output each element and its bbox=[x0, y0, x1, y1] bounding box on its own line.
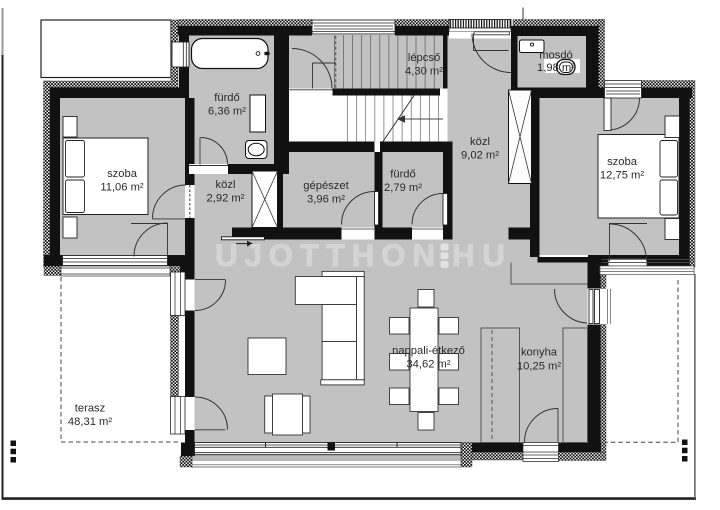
svg-text:szoba: szoba bbox=[607, 156, 638, 168]
svg-text:terasz: terasz bbox=[75, 403, 106, 415]
svg-text:nappali-étkező: nappali-étkező bbox=[392, 345, 465, 357]
svg-text:6,36 m²: 6,36 m² bbox=[208, 106, 246, 118]
svg-text:34,62 m²: 34,62 m² bbox=[406, 359, 450, 371]
svg-text:12,75 m²: 12,75 m² bbox=[600, 170, 644, 182]
svg-text:11,06 m²: 11,06 m² bbox=[100, 182, 144, 194]
svg-text:fürdő: fürdő bbox=[214, 92, 240, 104]
svg-text:48,31 m²: 48,31 m² bbox=[68, 416, 112, 428]
svg-text:1,98 m²: 1,98 m² bbox=[537, 62, 575, 74]
svg-text:10,25 m²: 10,25 m² bbox=[517, 361, 561, 373]
svg-text:mosdó: mosdó bbox=[539, 50, 573, 62]
svg-text:4,30 m²: 4,30 m² bbox=[405, 66, 443, 78]
svg-text:gépészet: gépészet bbox=[303, 180, 349, 192]
svg-text:közl: közl bbox=[470, 136, 490, 148]
svg-text:lépcső: lépcső bbox=[408, 52, 440, 64]
svg-text:UJOTTHON: UJOTTHON bbox=[215, 237, 437, 273]
svg-text:2,92 m²: 2,92 m² bbox=[207, 193, 245, 205]
svg-text:konyha: konyha bbox=[521, 347, 558, 359]
svg-text:3,96 m²: 3,96 m² bbox=[307, 194, 345, 206]
svg-text:fürdő: fürdő bbox=[390, 169, 416, 181]
svg-text:2,79 m²: 2,79 m² bbox=[384, 182, 422, 194]
svg-text:közl: közl bbox=[216, 179, 236, 191]
svg-text:szoba: szoba bbox=[107, 168, 138, 180]
svg-text:9,02 m²: 9,02 m² bbox=[461, 150, 499, 162]
